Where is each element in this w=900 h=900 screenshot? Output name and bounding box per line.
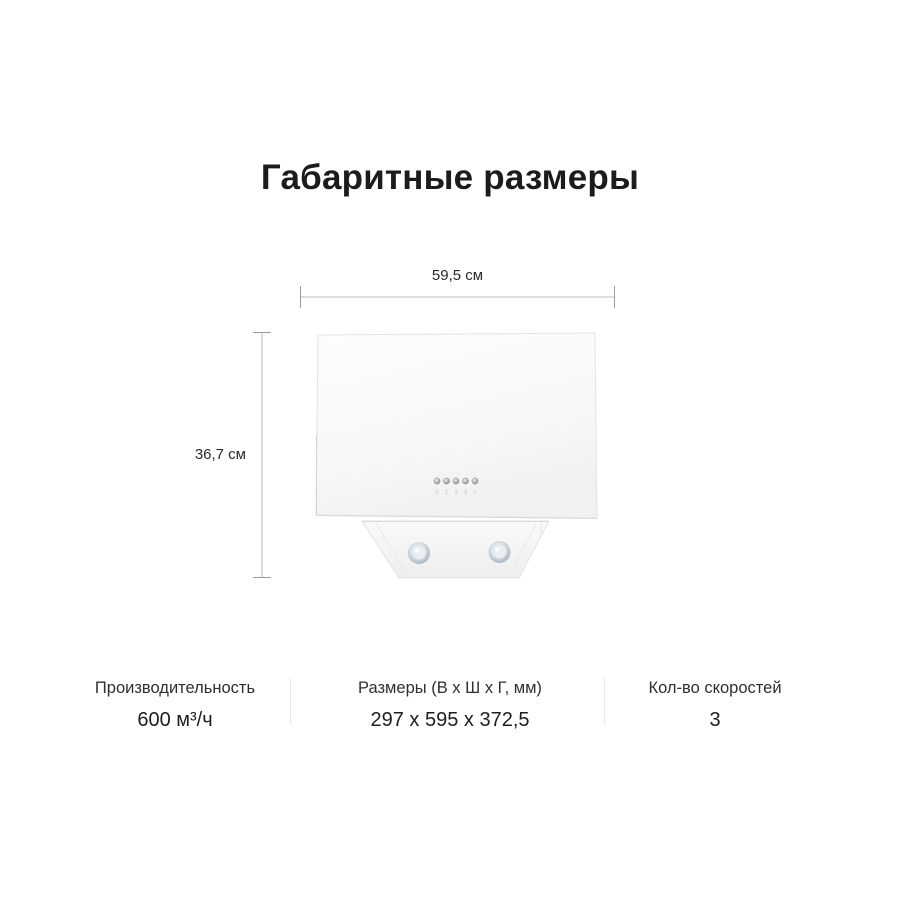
spec-divider [604, 678, 605, 724]
spec-col-dimensions: Размеры (В х Ш х Г, мм) 297 x 595 x 372,… [330, 678, 570, 732]
lamp-icon: ☼ [472, 490, 478, 496]
spec-label: Размеры (В х Ш х Г, мм) [330, 678, 570, 698]
dimension-diagram: 0 1 2 3 ☼ [0, 0, 900, 900]
height-dimension-label: 36,7 см [150, 447, 246, 463]
height-dimension-line [253, 332, 271, 578]
spec-divider [290, 678, 291, 724]
spec-label: Производительность [60, 678, 290, 698]
hood-underside [362, 521, 549, 578]
spec-value: 3 [610, 708, 820, 732]
spec-label: Кол-во скоростей [610, 678, 820, 698]
page: Габаритные размеры [0, 0, 900, 900]
spec-value: 600 м³/ч [60, 708, 290, 732]
hood-light-right [489, 541, 511, 563]
width-dimension-label: 59,5 см [300, 268, 615, 284]
width-dimension-line [300, 286, 615, 308]
spec-col-performance: Производительность 600 м³/ч [60, 678, 290, 732]
spec-col-speeds: Кол-во скоростей 3 [610, 678, 820, 732]
hood-light-left [408, 542, 430, 564]
spec-value: 297 x 595 x 372,5 [330, 708, 570, 732]
product-image: 0 1 2 3 ☼ [316, 333, 597, 578]
specs-row: Производительность 600 м³/ч Размеры (В х… [0, 678, 900, 748]
